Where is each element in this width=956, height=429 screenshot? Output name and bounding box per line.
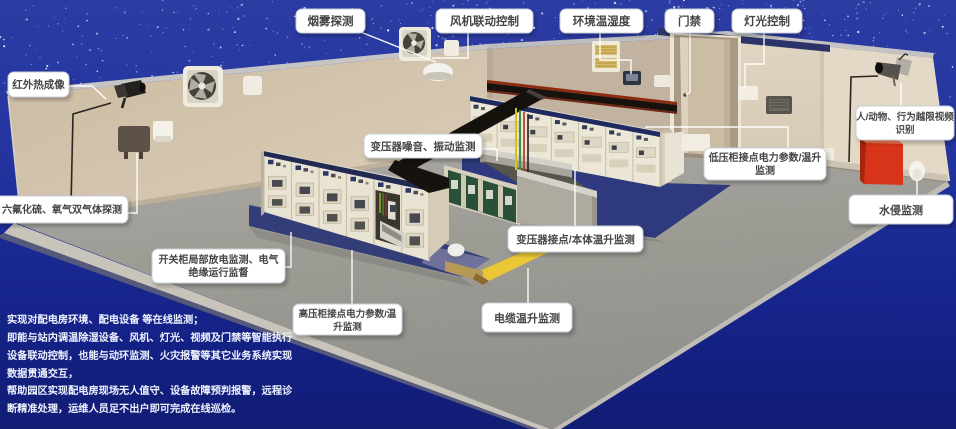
svg-text:高压柜接点电力参数/温: 高压柜接点电力参数/温	[299, 308, 397, 320]
svg-text:断精准处理，运维人员足不出户即可完成在线巡检。: 断精准处理，运维人员足不出户即可完成在线巡检。	[7, 402, 241, 415]
svg-text:升监测: 升监测	[333, 321, 362, 333]
svg-text:烟雾探测: 烟雾探测	[308, 14, 354, 28]
svg-text:监测: 监测	[755, 164, 775, 177]
svg-text:水侵监测: 水侵监测	[879, 203, 923, 217]
svg-text:帮助园区实现配电房现场无人值守、设备故障预判报警，远程诊: 帮助园区实现配电房现场无人值守、设备故障预判报警，远程诊	[7, 384, 293, 397]
svg-text:实现对配电房环境、配电设备 等在线监测；: 实现对配电房环境、配电设备 等在线监测；	[7, 313, 203, 326]
svg-text:电缆温升监测: 电缆温升监测	[494, 311, 560, 325]
svg-text:开关柜局部放电监测、电气: 开关柜局部放电监测、电气	[159, 253, 279, 266]
svg-text:六氟化硫、氧气双气体探测: 六氟化硫、氧气双气体探测	[2, 203, 122, 216]
svg-text:即能与站内调温除湿设备、风机、灯光、视频及门禁等智能执行: 即能与站内调温除湿设备、风机、灯光、视频及门禁等智能执行	[7, 331, 292, 344]
svg-text:环境温湿度: 环境温湿度	[573, 14, 631, 28]
svg-text:低压柜接点电力参数/温升: 低压柜接点电力参数/温升	[708, 151, 822, 164]
svg-text:变压器接点/本体温升监测: 变压器接点/本体温升监测	[516, 233, 634, 246]
svg-text:风机联动控制: 风机联动控制	[450, 14, 519, 28]
svg-text:识别: 识别	[895, 124, 914, 136]
svg-text:设备联动控制，也能与动环监测、火灾报警等其它业务系统实现: 设备联动控制，也能与动环监测、火灾报警等其它业务系统实现	[7, 349, 292, 362]
svg-text:灯光控制: 灯光控制	[744, 14, 790, 28]
svg-text:红外热成像: 红外热成像	[12, 78, 65, 91]
svg-text:门禁: 门禁	[678, 14, 701, 28]
svg-text:数据贯通交互，: 数据贯通交互，	[7, 367, 78, 380]
svg-text:变压器噪音、振动监测: 变压器噪音、振动监测	[371, 140, 476, 153]
svg-text:人/动物、行为越限视频: 人/动物、行为越限视频	[856, 111, 954, 123]
svg-text:绝缘运行监督: 绝缘运行监督	[189, 266, 249, 279]
